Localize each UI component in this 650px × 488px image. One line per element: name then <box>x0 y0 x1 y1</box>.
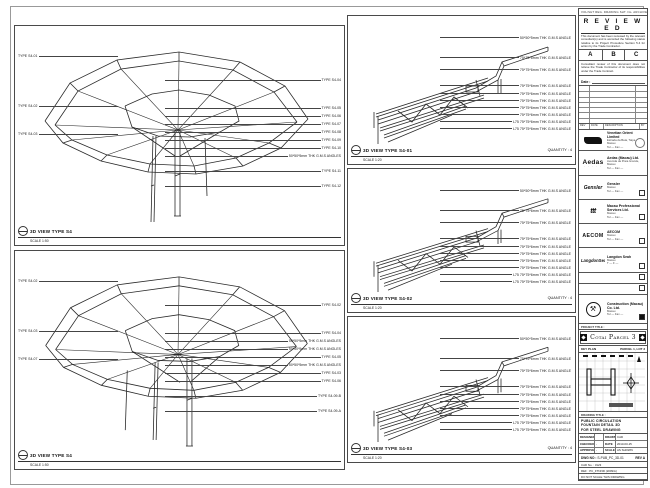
leader-label: TYPE S4-09-B <box>165 392 341 400</box>
detail-leader-labels: 50*50*5mm THK G.M.S ANGLE75*75*6mm THK G… <box>440 335 571 433</box>
leader-label: 75*75*6mm THK G.M.S ANGLE <box>440 243 571 250</box>
quantity-note: QUANTITY : 4 <box>548 446 572 450</box>
view-scale: SCALE 1:50 <box>30 239 341 243</box>
consultant-row-gensler: Gensler Gensler Macau Tel — Fax — <box>579 175 647 199</box>
leader-line <box>165 140 321 141</box>
date-fill-line <box>592 77 645 84</box>
leader-line <box>440 37 519 38</box>
view-title: 3D VIEW TYPE S4 <box>30 229 72 234</box>
leader-line <box>165 357 321 358</box>
leader-label: 75*75*6mm THK G.M.S ANGLE <box>440 111 571 118</box>
leader-label: 75*75*6mm THK G.M.S ANGLE <box>440 82 571 89</box>
leader-line <box>165 132 321 133</box>
view-title-bar: 3D VIEW TYPE S4 SCALE 1:50 <box>15 225 344 245</box>
leader-label: 75*75*6mm THK G.M.S ANGLE <box>440 207 571 214</box>
leader-line <box>440 260 519 261</box>
leader-label: L75 75*75*6mm THK G.M.S ANGLE <box>440 278 571 285</box>
ornament-icon <box>580 334 587 341</box>
leader-line <box>165 148 321 149</box>
right-leader-labels: TYPE S4-04TYPE S4-05TYPE S4-06TYPE S4-07… <box>165 76 341 190</box>
key-plan <box>579 352 647 411</box>
leader-label: 75*75*6mm THK G.M.S ANGLE <box>440 264 571 271</box>
leader-label: TYPE S4-02 <box>165 301 341 309</box>
leader-line <box>165 365 288 366</box>
leader-line <box>440 429 512 430</box>
leader-line <box>165 341 288 342</box>
leader-label: 75*75*6mm THK G.M.S ANGLE <box>440 383 571 390</box>
contractor-emblem-logo: ⚒ <box>586 302 601 317</box>
leader-label: L75 75*75*6mm THK G.M.S ANGLE <box>440 426 571 433</box>
view-title-bar: 3D VIEW TYPE S4-02 QUANTITY : 4 SCALE 1:… <box>348 292 575 312</box>
dwg-no-value: S-PUB_PC_3D-01 <box>597 456 623 460</box>
leader-line <box>440 210 519 211</box>
leader-label: 75*75*6mm THK G.M.S ANGLE <box>440 54 571 61</box>
view-title: 3D VIEW TYPE S4-03 <box>363 446 412 451</box>
contractor-row: ⚒ Construction (Macau) Co. Ltd. Macau Te… <box>579 294 647 323</box>
drawing-fields: DESIGNED DRAWN CAD CHECKED - DATE 2013-0… <box>579 433 647 453</box>
project-title: Cotai Parcel 3 <box>590 334 636 341</box>
title-block-filler <box>579 479 647 482</box>
leader-line <box>440 253 519 254</box>
key-plan-bar: KEY PLAN PARCEL 1, LOT 3 <box>579 345 647 352</box>
leader-line <box>440 415 519 416</box>
leader-line <box>39 359 118 360</box>
leader-line <box>440 408 519 409</box>
leader-line <box>165 373 321 374</box>
consultant-checkbox <box>639 285 645 291</box>
ornament-icon <box>639 334 646 341</box>
leader-label: 50*50*5mm THK G.M.S ANGLE <box>440 187 571 194</box>
consultant-row-aedas: Aedas · · · · · Aedas (Macau) Ltd. Aveni… <box>579 150 647 175</box>
leader-label: 75*75*6mm THK G.M.S ANGLE <box>440 219 571 226</box>
leader-line <box>165 124 321 125</box>
leader-label: 75*75*6mm THK G.M.S ANGLE <box>440 104 571 111</box>
leader-line <box>165 305 321 306</box>
leader-label: TYPE S4-10 <box>165 144 341 152</box>
leader-line <box>440 107 519 108</box>
aedas-logo-dots: · · · · · <box>581 166 605 168</box>
stamp-disclaimer: Consultant review of this document does … <box>579 60 647 75</box>
dwg-no-label: DWG NO : <box>581 456 596 460</box>
detail-bubble-icon <box>18 226 28 236</box>
dwg-number-row: DWG NO : S-PUB_PC_3D-01 REV A <box>579 453 647 461</box>
drawing-title: PUBLIC CIRCULATION FOUNTAIN DETAIL 3D FO… <box>579 417 647 433</box>
consultant-checkbox <box>639 238 645 244</box>
view-scale: SCALE 1:20 <box>363 158 572 162</box>
leader-line <box>440 386 519 387</box>
quantity-note: QUANTITY : 4 <box>548 296 572 300</box>
leader-line <box>440 121 512 122</box>
project-title-plate: Cotai Parcel 3 <box>579 329 647 345</box>
grade-c: C <box>624 50 647 60</box>
leader-line <box>39 134 118 135</box>
leader-label: TYPE S4-03 <box>18 327 118 335</box>
left-leader-labels: TYPE S4-02TYPE S4-03TYPE S4-07 <box>18 277 118 363</box>
leader-line <box>440 238 519 239</box>
leader-line <box>440 358 519 359</box>
revision-value: REV A <box>635 456 645 460</box>
leader-label: TYPE S4-07 <box>165 120 341 128</box>
reviewed-stamp-title: R E V I E W E D <box>581 17 645 34</box>
leader-line <box>440 114 519 115</box>
leader-label: 75*75*6mm THK G.M.S ANGLE <box>440 412 571 419</box>
leader-line <box>440 422 512 423</box>
reviewed-stamp-body: This document has been reviewed by the r… <box>581 35 645 49</box>
consultant-checkbox <box>639 274 645 280</box>
detail-bubble-icon <box>351 145 361 155</box>
grade-b: B <box>602 50 625 60</box>
leader-line <box>440 274 512 275</box>
stamp-date-row: Date : <box>579 75 647 85</box>
client-row: Venetian Orient Limited Estrada da Baía,… <box>579 129 647 150</box>
leader-label: TYPE S4-06 <box>165 377 341 385</box>
revision-table <box>579 85 647 123</box>
key-plan-map-drawing <box>579 353 645 411</box>
contractor-checkbox-checked <box>639 314 645 320</box>
leader-label: TYPE S4-04 <box>165 329 341 337</box>
leader-label: L75 75*75*6mm THK G.M.S ANGLE <box>440 271 571 278</box>
leader-line <box>440 100 519 101</box>
leader-line <box>165 333 321 334</box>
right-leader-labels: TYPE S4-02TYPE S4-0450*50*5mm THK G.M.S … <box>165 301 341 415</box>
mps-logo: ttt <box>581 208 605 215</box>
leader-label: TYPE S4-03 <box>165 369 341 377</box>
leader-label: 50*50*5mm THK G.M.S ANGLES <box>165 361 341 369</box>
aecom-logo: AECOM <box>581 233 605 239</box>
leader-line <box>39 56 118 57</box>
gensler-logo: Gensler <box>581 185 605 191</box>
view-title-bar: 3D VIEW TYPE S4-03 QUANTITY : 4 SCALE 1:… <box>348 442 575 462</box>
consultant-checkbox <box>639 190 645 196</box>
leader-label: 75*75*6mm THK G.M.S ANGLE <box>440 90 571 97</box>
leader-label: 75*75*6mm THK G.M.S ANGLE <box>440 257 571 264</box>
leader-label: TYPE S4-01 <box>18 52 118 60</box>
langdon-seah-logo: LangdonSeah <box>581 258 605 263</box>
drawing-sheet: { "views": { "top_left": { "title": "3D … <box>0 0 650 488</box>
view-panel-type-s4-top: TYPE S4-01TYPE S4-02TYPE S4-03 TYPE S4-0… <box>14 25 345 246</box>
leader-label: L75 75*75*6mm THK G.M.S ANGLE <box>440 118 571 125</box>
leader-label: TYPE S4-06 <box>165 112 341 120</box>
detail-panel-s4-02: 50*50*5mm THK G.M.S ANGLE75*75*6mm THK G… <box>347 168 576 313</box>
leader-line <box>440 267 519 268</box>
north-arrow-icon <box>637 356 641 362</box>
leader-label: 75*75*6mm THK G.M.S ANGLE <box>440 367 571 374</box>
detail-panel-s4-01: 50*50*5mm THK G.M.S ANGLE75*75*6mm THK G… <box>347 15 576 165</box>
view-panel-type-s4-bottom: TYPE S4-02TYPE S4-03TYPE S4-07 TYPE S4-0… <box>14 250 345 470</box>
view-title-bar: 3D VIEW TYPE S4-01 QUANTITY : 4 SCALE 1:… <box>348 144 575 164</box>
leader-line <box>165 349 288 350</box>
date-label: Date : <box>581 80 590 84</box>
title-block: VOL/SHT REG. DRAWING SHT. No. ARCHIVE No… <box>578 8 648 481</box>
consultant-row-aecom: AECOM AECOM Macau Tel — Fax — <box>579 223 647 247</box>
leader-label: L75 75*75*6mm THK G.M.S ANGLE <box>440 125 571 132</box>
leader-label: 50*50*5mm THK G.M.S ANGLES <box>165 152 341 160</box>
view-scale: SCALE 1:50 <box>30 463 341 467</box>
leader-label: 75*75*6mm THK G.M.S ANGLE <box>440 355 571 362</box>
leader-label: 75*75*6mm THK G.M.S ANGLE <box>440 391 571 398</box>
detail-bubble-icon <box>18 450 28 460</box>
leader-label: TYPE S4-09 <box>165 136 341 144</box>
detail-panel-s4-03: 50*50*5mm THK G.M.S ANGLE75*75*6mm THK G… <box>347 316 576 463</box>
quantity-note: QUANTITY : 4 <box>548 148 572 152</box>
left-leader-labels: TYPE S4-01TYPE S4-02TYPE S4-03 <box>18 52 118 138</box>
grade-a: A <box>579 50 602 60</box>
leader-label: TYPE S4-03 <box>18 130 118 138</box>
leader-line <box>440 128 512 129</box>
view-title-bar: 3D VIEW TYPE S4 SCALE 1:50 <box>15 449 344 469</box>
detail-bubble-icon <box>351 443 361 453</box>
leader-label: 50*50*5mm THK G.M.S ANGLES <box>165 337 341 345</box>
leader-line <box>39 106 118 107</box>
leader-label: TYPE S4-07 <box>18 355 118 363</box>
reviewed-stamp: R E V I E W E D This document has been r… <box>579 15 647 49</box>
leader-line <box>440 222 519 223</box>
detail-bubble-icon <box>351 293 361 303</box>
leader-label: TYPE S4-04 <box>165 76 341 84</box>
leader-label: TYPE S4-09-A <box>165 407 341 415</box>
leader-line <box>440 93 519 94</box>
leader-label: 50*50*5mm THK G.M.S ANGLE <box>440 335 571 342</box>
leader-label: TYPE S4-11 <box>165 167 341 175</box>
leader-line <box>440 190 519 191</box>
leader-label: TYPE S4-08 <box>165 128 341 136</box>
leader-line <box>165 186 321 187</box>
consultant-checkbox <box>639 263 645 269</box>
leader-label: 50*50*5mm THK G.M.S ANGLE <box>440 34 571 41</box>
leader-line <box>440 394 519 395</box>
leader-label: 75*75*6mm THK G.M.S ANGLE <box>440 398 571 405</box>
leader-line <box>440 281 512 282</box>
status-grade-row: A B C <box>579 49 647 60</box>
leader-line <box>165 108 321 109</box>
leader-label: TYPE S4-12 <box>165 182 341 190</box>
leader-line <box>165 381 321 382</box>
leader-line <box>440 401 519 402</box>
consultant-row-macau-professional: ttt Macau Professional Services Ltd. Mac… <box>579 199 647 223</box>
leader-label: 75*75*6mm THK G.M.S ANGLE <box>440 235 571 242</box>
leader-line <box>440 69 519 70</box>
parcel-label: PARCEL 1, LOT 3 <box>620 347 645 351</box>
leader-line <box>165 411 317 412</box>
leader-line <box>440 246 519 247</box>
leader-label: 75*75*6mm THK G.M.S ANGLE <box>440 66 571 73</box>
leader-line <box>39 331 118 332</box>
view-scale: SCALE 1:20 <box>363 306 572 310</box>
consultant-row-empty-2 <box>579 283 647 294</box>
consultant-checkbox <box>639 214 645 220</box>
leader-line <box>165 156 288 157</box>
leader-label: TYPE S4-02 <box>18 102 118 110</box>
leader-line <box>165 171 321 172</box>
view-title: 3D VIEW TYPE S4-02 <box>363 296 412 301</box>
view-title: 3D VIEW TYPE S4 <box>30 453 72 458</box>
leader-line <box>165 396 317 397</box>
view-scale: SCALE 1:20 <box>363 456 572 460</box>
leader-label: L75 75*75*6mm THK G.M.S ANGLE <box>440 419 571 426</box>
consultant-row-langdon-seah: LangdonSeah Langdon Seah Macau T — F — <box>579 247 647 272</box>
leader-line <box>39 281 118 282</box>
leader-line <box>440 338 519 339</box>
detail-leader-labels: 50*50*5mm THK G.M.S ANGLE75*75*6mm THK G… <box>440 187 571 285</box>
leader-line <box>440 57 519 58</box>
leader-line <box>440 85 519 86</box>
leader-line <box>165 80 321 81</box>
leader-line <box>165 116 321 117</box>
approval-stamp-circle <box>635 138 645 148</box>
detail-leader-labels: 50*50*5mm THK G.M.S ANGLE75*75*6mm THK G… <box>440 34 571 132</box>
leader-label: 75*75*6mm THK G.M.S ANGLE <box>440 405 571 412</box>
leader-line <box>440 370 519 371</box>
key-plan-label: KEY PLAN <box>581 347 596 351</box>
view-title: 3D VIEW TYPE S4-01 <box>363 148 412 153</box>
leader-label: TYPE S4-02 <box>18 277 118 285</box>
leader-label: 50*50*5mm THK G.M.S ANGLES <box>165 345 341 353</box>
venetian-logo <box>584 137 602 144</box>
leader-label: 75*75*6mm THK G.M.S ANGLE <box>440 97 571 104</box>
consultant-row-empty-1 <box>579 272 647 283</box>
leader-label: TYPE S4-05 <box>165 353 341 361</box>
leader-label: 75*75*6mm THK G.M.S ANGLE <box>440 250 571 257</box>
leader-label: TYPE S4-05 <box>165 104 341 112</box>
